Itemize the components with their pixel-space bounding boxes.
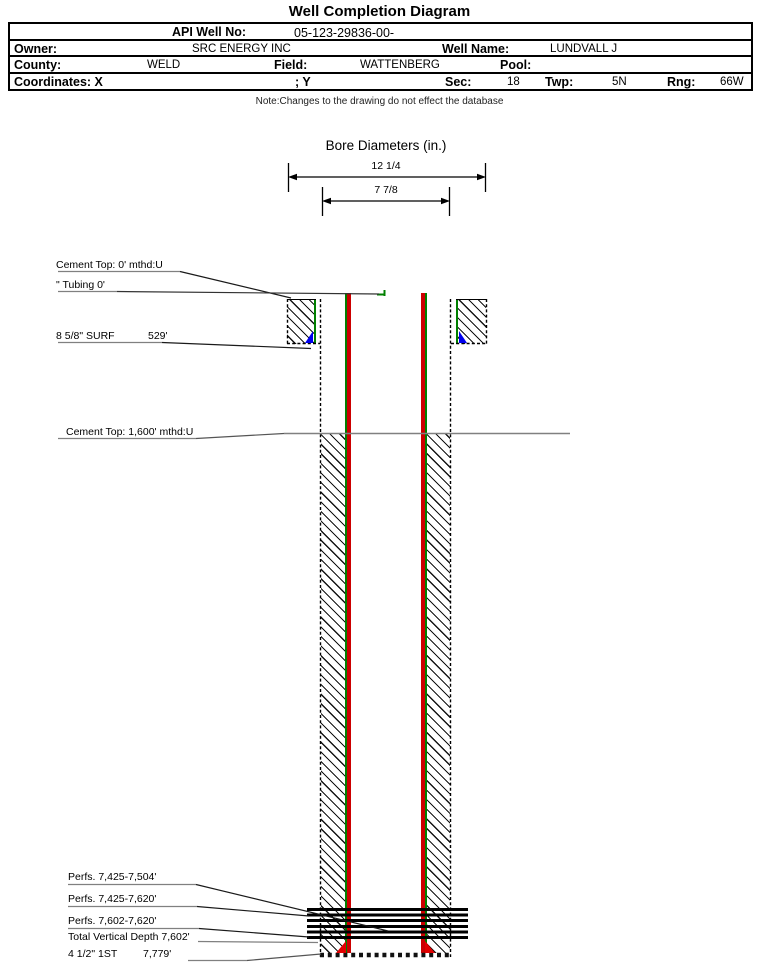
page-title: Well Completion Diagram: [0, 3, 759, 20]
cement-top-production-label: Cement Top: 1,600' mthd:U: [66, 426, 193, 438]
rng-label: Rng:: [667, 75, 695, 89]
owner-value: SRC ENERGY INC: [192, 43, 291, 55]
header-row-api: API Well No: 05-123-29836-00-: [10, 24, 751, 39]
surface-casing-label: 8 5/8" SURF 529': [56, 330, 115, 342]
sec-label: Sec:: [445, 75, 471, 89]
bore-diameters-title: Bore Diameters (in.): [0, 138, 759, 153]
api-well-no-label: API Well No:: [172, 25, 246, 39]
coordinates-label: Coordinates: X: [14, 75, 103, 89]
cement-bond-line-right: [425, 293, 427, 953]
tubing-marker: [377, 290, 385, 296]
well-name-label: Well Name:: [442, 42, 509, 56]
well-name-value: LUNDVALL J: [550, 43, 617, 55]
twp-value: 5N: [612, 76, 627, 88]
surface-casing-size: 8 5/8" SURF: [56, 330, 115, 342]
owner-label: Owner:: [14, 42, 57, 56]
field-label: Field:: [274, 58, 307, 72]
cement-bond-line: [314, 300, 316, 344]
county-label: County:: [14, 58, 61, 72]
production-cement-right: [427, 433, 450, 953]
coordinates-y-label: ; Y: [295, 75, 311, 89]
field-value: WATTENBERG: [360, 59, 440, 71]
production-cement-left: [321, 433, 345, 953]
perf-interval-1-label: Perfs. 7,425-7,504': [68, 871, 156, 883]
surface-cement-block-right: [456, 299, 486, 344]
production-casing-size: 4 1/2" 1ST: [68, 948, 117, 960]
inner-bore-diameter-label: 7 7/8: [0, 184, 759, 196]
leader-lines: [58, 272, 570, 961]
perforation-bars: [307, 908, 468, 939]
header-row-coordinates: Coordinates: X ; Y Sec: 18 Twp: 5N Rng: …: [10, 74, 751, 89]
surface-casing-depth: 529': [148, 330, 168, 342]
header-table: API Well No: 05-123-29836-00- Owner: SRC…: [8, 22, 753, 91]
header-row-owner: Owner: SRC ENERGY INC Well Name: LUNDVAL…: [10, 41, 751, 56]
production-casing-depth: 7,779': [143, 948, 171, 960]
perf-interval-3-label: Perfs. 7,602-7,620': [68, 915, 156, 927]
cement-bond-line: [456, 300, 458, 344]
rng-value: 66W: [720, 76, 744, 88]
county-value: WELD: [147, 59, 180, 71]
well-completion-diagram-page: Well Completion Diagram API Well No: 05-…: [0, 0, 759, 962]
borehole-walls: [287, 299, 487, 957]
twp-label: Twp:: [545, 75, 573, 89]
pool-label: Pool:: [500, 58, 531, 72]
database-note: Note:Changes to the drawing do not effec…: [0, 96, 759, 107]
surface-cement-block-left: [287, 299, 316, 344]
header-row-county: County: WELD Field: WATTENBERG Pool:: [10, 57, 751, 72]
total-vertical-depth-label: Total Vertical Depth 7,602': [68, 931, 190, 943]
sec-value: 18: [507, 76, 520, 88]
production-casing-label: 4 1/2" 1ST 7,779': [68, 948, 117, 960]
outer-bore-diameter-label: 12 1/4: [0, 160, 759, 172]
perf-interval-2-label: Perfs. 7,425-7,620': [68, 893, 156, 905]
tubing-label: " Tubing 0': [56, 279, 105, 291]
cement-top-surface-label: Cement Top: 0' mthd:U: [56, 259, 163, 271]
api-well-no-value: 05-123-29836-00-: [294, 26, 394, 40]
production-casing-left: [347, 293, 351, 953]
